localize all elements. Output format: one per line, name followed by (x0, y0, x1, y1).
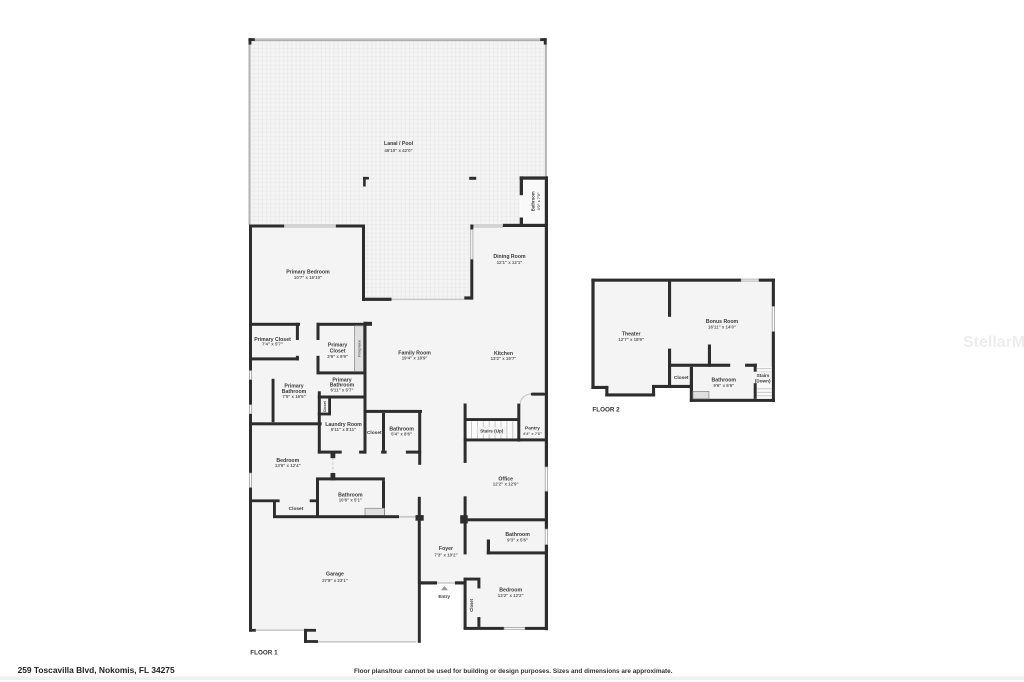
svg-text:Closet: Closet (323, 400, 327, 412)
svg-text:Primary: Primary (328, 342, 347, 348)
svg-text:Entry: Entry (438, 594, 450, 599)
svg-text:4'4" x 7'6": 4'4" x 7'6" (523, 431, 542, 436)
svg-text:7'5" x 16'5": 7'5" x 16'5" (282, 394, 305, 399)
svg-text:9'6" x 5'6": 9'6" x 5'6" (713, 383, 734, 388)
svg-text:Closet: Closet (674, 375, 689, 381)
svg-text:Lanai / Pool: Lanai / Pool (384, 141, 414, 147)
svg-text:6'11" x 5'7": 6'11" x 5'7" (330, 387, 353, 392)
svg-text:3'9" x 9'9": 3'9" x 9'9" (327, 354, 348, 359)
svg-text:10'6" x 5'1": 10'6" x 5'1" (339, 498, 362, 503)
svg-text:9'3" x 5'6": 9'3" x 5'6" (507, 538, 528, 543)
svg-text:13'2" x 12'2": 13'2" x 12'2" (498, 593, 524, 598)
svg-text:Stairs: Stairs (757, 373, 770, 378)
svg-text:(Down): (Down) (755, 379, 771, 384)
svg-text:10'7" x 15'10": 10'7" x 15'10" (294, 275, 322, 280)
svg-text:4'0" x 7'0": 4'0" x 7'0" (537, 192, 541, 210)
svg-text:12'2" x 12'9": 12'2" x 12'9" (493, 481, 519, 486)
svg-text:259 Toscavilla Blvd, Nokomis,: 259 Toscavilla Blvd, Nokomis, FL 34275 (18, 665, 175, 675)
svg-text:StellarMLS: StellarMLS (963, 334, 1024, 351)
svg-text:16'11" x 14'0": 16'11" x 14'0" (708, 325, 736, 330)
svg-text:6'11" x 8'11": 6'11" x 8'11" (331, 427, 356, 432)
svg-text:5'4" x 8'6": 5'4" x 8'6" (391, 432, 412, 437)
svg-text:Bathroom: Bathroom (530, 191, 535, 211)
svg-text:27'8" x 23'1": 27'8" x 23'1" (322, 578, 348, 583)
svg-text:Stairs (Up): Stairs (Up) (480, 428, 504, 433)
svg-text:Closet: Closet (367, 430, 382, 436)
svg-text:19'4" x 18'9": 19'4" x 18'9" (402, 355, 428, 360)
svg-text:13'2" x 19'7": 13'2" x 19'7" (491, 356, 517, 361)
svg-text:7'4" x 5'7": 7'4" x 5'7" (262, 341, 283, 346)
svg-text:46'10" x 42'0": 46'10" x 42'0" (384, 148, 412, 153)
svg-text:13'6" x 12'4": 13'6" x 12'4" (275, 463, 301, 468)
svg-text:Floor plans/tour cannot be use: Floor plans/tour cannot be used for buil… (354, 668, 673, 675)
svg-text:FLOOR 1: FLOOR 1 (250, 650, 278, 657)
svg-text:Foyer: Foyer (439, 546, 453, 552)
svg-text:Closet: Closet (469, 598, 474, 611)
svg-text:7'3" x 10'2": 7'3" x 10'2" (434, 552, 457, 557)
svg-text:Fireplace: Fireplace (357, 339, 362, 357)
svg-text:12'1" x 12'1": 12'1" x 12'1" (497, 260, 523, 265)
svg-text:12'7" x 18'9": 12'7" x 18'9" (618, 337, 644, 342)
svg-text:Dining Room: Dining Room (493, 254, 526, 260)
svg-text:FLOOR 2: FLOOR 2 (592, 406, 620, 413)
svg-text:Closet: Closet (289, 506, 304, 512)
svg-text:Garage: Garage (326, 571, 344, 577)
